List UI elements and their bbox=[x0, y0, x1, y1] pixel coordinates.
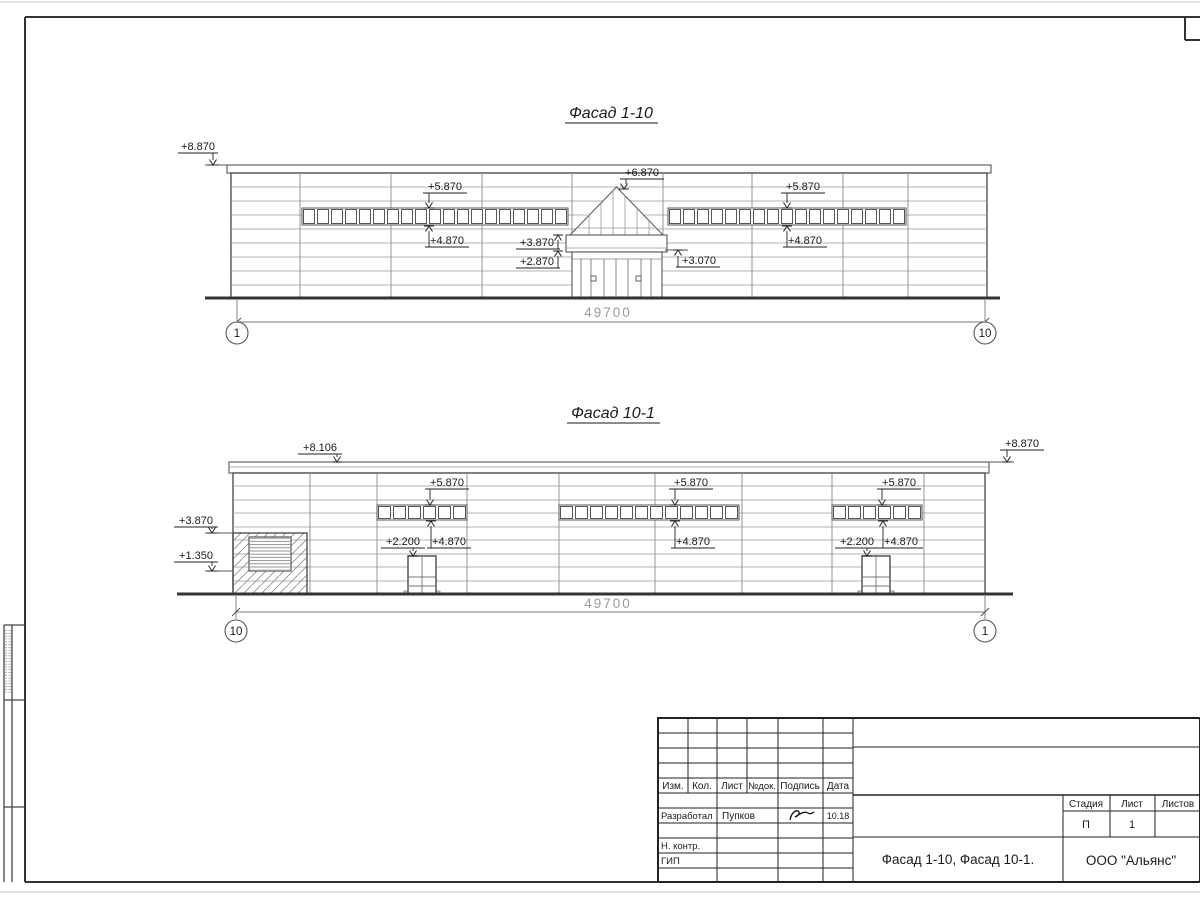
svg-text:+5.870: +5.870 bbox=[430, 477, 464, 489]
developed-date: 10.18 bbox=[827, 811, 850, 821]
mark-gate-mid: +1.350 bbox=[174, 550, 233, 571]
svg-text:+2.200: +2.200 bbox=[386, 536, 420, 548]
facade-bottom: Фасад 10-1 bbox=[174, 405, 1044, 642]
drawing-canvas: Фасад 1-10 bbox=[0, 0, 1200, 900]
sheets-label: Листов bbox=[1162, 799, 1195, 810]
developed-label: Разработал bbox=[661, 811, 713, 822]
svg-text:+5.870: +5.870 bbox=[786, 181, 820, 193]
svg-text:+4.870: +4.870 bbox=[430, 235, 464, 247]
facade-bottom-door-right bbox=[858, 556, 894, 594]
door-handle-left bbox=[591, 276, 596, 281]
svg-text:+6.870: +6.870 bbox=[625, 167, 659, 179]
header-kol: Кол. bbox=[692, 781, 712, 792]
drawing-sheet: Фасад 1-10 bbox=[0, 0, 1200, 900]
svg-text:+5.870: +5.870 bbox=[674, 477, 708, 489]
doc-title: Фасад 1-10, Фасад 10-1. bbox=[882, 852, 1035, 867]
svg-text:+4.870: +4.870 bbox=[788, 235, 822, 247]
header-izm: Изм. bbox=[662, 781, 683, 792]
svg-text:+5.870: +5.870 bbox=[428, 181, 462, 193]
svg-text:+8.106: +8.106 bbox=[303, 442, 337, 454]
stage-value: П bbox=[1082, 819, 1090, 831]
svg-text:+8.870: +8.870 bbox=[1005, 438, 1039, 450]
mark-parapet-left: +8.106 bbox=[298, 442, 342, 462]
svg-text:+4.870: +4.870 bbox=[432, 536, 466, 548]
mark-roof-left: +8.870 bbox=[178, 141, 227, 165]
facade-bottom-axis-right: 1 bbox=[982, 626, 988, 638]
header-ndok: №док. bbox=[748, 781, 776, 792]
door-handle-right bbox=[636, 276, 641, 281]
facade-top-axis-left: 1 bbox=[234, 328, 240, 340]
svg-text:+1.350: +1.350 bbox=[179, 550, 213, 562]
facade-bottom-gate-block bbox=[233, 533, 307, 594]
facade-bottom-parapet bbox=[229, 462, 989, 473]
svg-text:+2.200: +2.200 bbox=[840, 536, 874, 548]
facade-top-dimension: 49700 1 10 bbox=[226, 300, 996, 344]
facade-bottom-window-strips bbox=[377, 505, 922, 520]
facade-bottom-door-left bbox=[404, 556, 440, 594]
entrance-fascia bbox=[566, 235, 667, 252]
company-name: ООО "Альянс" bbox=[1086, 853, 1176, 868]
stage-label: Стадия bbox=[1069, 799, 1103, 810]
filing-strip bbox=[4, 625, 25, 882]
gip-label: ГИП bbox=[661, 856, 680, 867]
filing-strip-vertical-text bbox=[5, 629, 11, 693]
facade-top-axis-right: 10 bbox=[979, 328, 992, 340]
facade-top-parapet bbox=[227, 165, 991, 173]
developed-name: Пупков bbox=[722, 811, 755, 822]
svg-text:+3.870: +3.870 bbox=[520, 237, 554, 249]
norm-control-label: Н. контр. bbox=[661, 841, 700, 852]
mark-parapet-right: +8.870 bbox=[989, 438, 1044, 462]
facade-bottom-dimension: 49700 10 1 bbox=[225, 596, 996, 642]
svg-text:+5.870: +5.870 bbox=[882, 477, 916, 489]
svg-text:+4.870: +4.870 bbox=[676, 536, 710, 548]
facade-top-dim-text: 49700 bbox=[584, 305, 632, 320]
svg-text:+3.070: +3.070 bbox=[682, 255, 716, 267]
header-list: Лист bbox=[721, 781, 743, 792]
svg-text:+2.870: +2.870 bbox=[520, 256, 554, 268]
svg-text:+4.870: +4.870 bbox=[884, 536, 918, 548]
facade-bottom-dim-text: 49700 bbox=[584, 596, 632, 611]
svg-text:+3.870: +3.870 bbox=[179, 515, 213, 527]
svg-text:+8.870: +8.870 bbox=[181, 141, 215, 153]
header-podpis: Подпись bbox=[780, 781, 820, 792]
facade-top: Фасад 1-10 bbox=[178, 105, 1000, 344]
facade-bottom-axis-left: 10 bbox=[230, 626, 243, 638]
header-data: Дата bbox=[827, 781, 850, 792]
sheet-value: 1 bbox=[1129, 819, 1135, 831]
title-block: Изм. Кол. Лист №док. Подпись Дата Разраб… bbox=[658, 718, 1200, 882]
sheet-label: Лист bbox=[1121, 799, 1143, 810]
facade-top-title: Фасад 1-10 bbox=[569, 105, 653, 122]
mark-gate-top: +3.870 bbox=[174, 515, 233, 533]
facade-bottom-title: Фасад 10-1 bbox=[571, 405, 655, 422]
